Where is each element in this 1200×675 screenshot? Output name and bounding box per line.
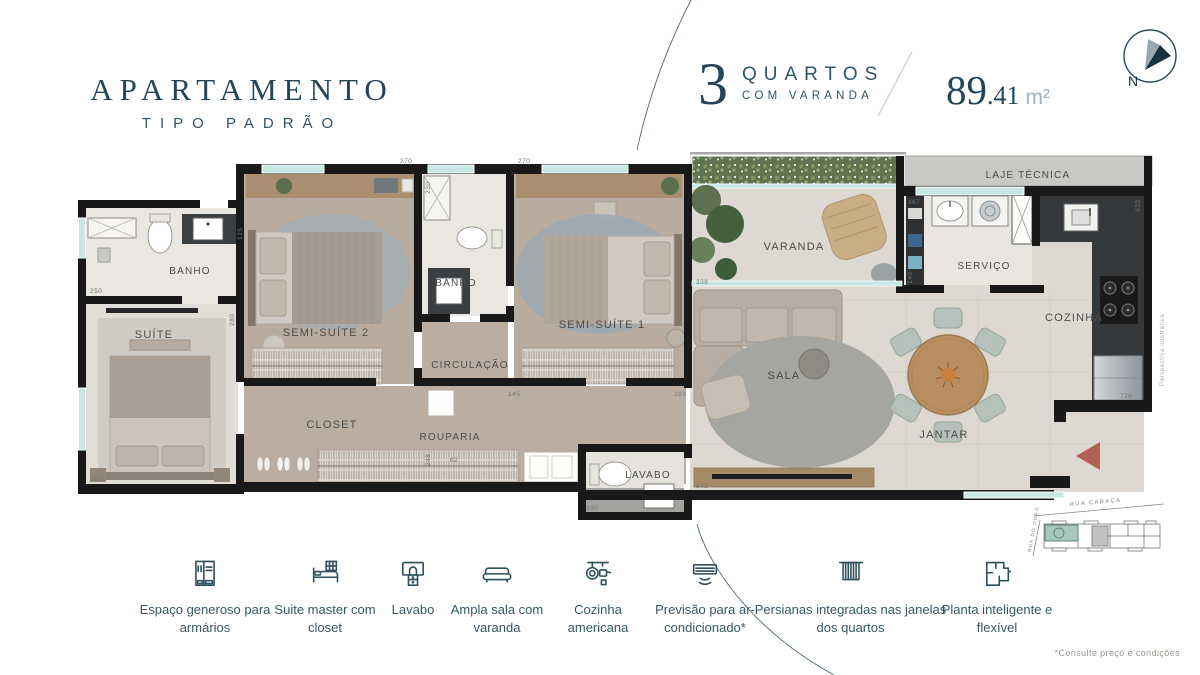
- svg-text:283: 283: [674, 391, 686, 398]
- bed-closet-icon: [308, 558, 342, 592]
- room-label-varanda: VARANDA: [764, 241, 825, 253]
- room-label-lavabo: LAVABO: [625, 470, 671, 481]
- feature-caption: Espaço generoso para armários: [130, 601, 280, 636]
- kitchen-icon: [581, 558, 615, 592]
- wardrobe-icon: [188, 558, 222, 592]
- svg-text:150: 150: [586, 505, 598, 512]
- feature-caption: Lavabo: [373, 601, 453, 619]
- svg-text:563: 563: [90, 476, 102, 483]
- room-label-rouparia: ROUPARIA: [419, 432, 480, 443]
- feature-ampla-sala: Ampla sala com varanda: [445, 558, 549, 636]
- feature-caption: Ampla sala com varanda: [445, 601, 549, 636]
- room-label-sala: SALA: [768, 370, 801, 382]
- ac-icon: [688, 558, 722, 592]
- compass-north-icon: N: [1120, 22, 1184, 92]
- feature-caption: Suite master com closet: [266, 601, 384, 636]
- room-label-closet: CLOSET: [306, 419, 357, 431]
- bedrooms-number: 3: [698, 56, 728, 113]
- vanity-icon: [396, 558, 430, 592]
- svg-text:367: 367: [908, 199, 920, 206]
- room-label-suite: SUÍTE: [135, 328, 173, 341]
- sofa-icon: [480, 558, 514, 592]
- svg-text:248: 248: [425, 454, 432, 466]
- svg-text:62: 62: [450, 457, 458, 464]
- room-label-laje-tecnica: LAJE TÉCNICA: [986, 168, 1071, 181]
- room-label-servico: SERVIÇO: [957, 261, 1010, 272]
- feature-lavabo: Lavabo: [373, 558, 453, 619]
- floor-plan: BANHO SUÍTE SEMI-SUÍTE 2 BANHO SEMI-SUÍT…: [78, 150, 1158, 526]
- feature-caption: Planta inteligente e flexível: [922, 601, 1072, 636]
- room-label-semi-suite-2: SEMI-SUÍTE 2: [283, 326, 370, 339]
- feature-wardrobe: Espaço generoso para armários: [130, 558, 280, 636]
- svg-text:842: 842: [696, 483, 708, 490]
- svg-text:726: 726: [1120, 393, 1132, 400]
- area-block: 89.41m²: [946, 66, 1050, 114]
- floor-plan-drawing: BANHO SUÍTE SEMI-SUÍTE 2 BANHO SEMI-SUÍT…: [78, 150, 1158, 526]
- keyplan: RUA CARAÇA RUA DO OURO: [1028, 494, 1172, 570]
- svg-text:280: 280: [229, 314, 236, 326]
- room-label-jantar: JANTAR: [919, 429, 968, 441]
- area-unit: m²: [1026, 86, 1051, 109]
- svg-text:140: 140: [907, 272, 914, 284]
- floorplan-icon: [980, 558, 1014, 592]
- svg-text:125: 125: [237, 228, 244, 240]
- svg-text:270: 270: [400, 158, 412, 165]
- watermark-vertical: Perspectiva ilustrativa: [1160, 314, 1166, 386]
- street-label-rua-caraca: RUA CARAÇA: [1070, 498, 1122, 508]
- room-label-semi-suite-1: SEMI-SUÍTE 1: [559, 318, 646, 331]
- area-value: 89: [946, 67, 987, 113]
- feature-suite-master: Suite master com closet: [266, 558, 384, 636]
- svg-text:145: 145: [508, 391, 520, 398]
- units-block: 3 QUARTOS COM VARANDA: [698, 56, 884, 113]
- apartment-floorplan-page: APARTAMENTO TIPO PADRÃO 3 QUARTOS COM VA…: [0, 0, 1200, 675]
- area-value-frac: .41: [987, 81, 1020, 110]
- room-label-banho1: BANHO: [169, 266, 211, 277]
- svg-text:230: 230: [425, 182, 432, 194]
- room-label-cozinha: COZINHA: [1045, 312, 1103, 324]
- room-label-banho2: BANHO: [435, 278, 477, 289]
- page-subtitle: TIPO PADRÃO: [82, 115, 402, 132]
- room-label-circulacao: CIRCULAÇÃO: [431, 358, 509, 371]
- footnote: *Consulte preço e condições: [1018, 648, 1180, 658]
- svg-text:270: 270: [518, 158, 530, 165]
- svg-text:N: N: [1128, 73, 1138, 89]
- svg-text:250: 250: [90, 288, 102, 295]
- svg-text:338: 338: [696, 279, 708, 286]
- bedrooms-label: QUARTOS: [742, 64, 884, 86]
- page-title: APARTAMENTO: [82, 72, 402, 108]
- svg-text:333: 333: [1135, 200, 1142, 212]
- blinds-icon: [834, 558, 868, 592]
- title-block: APARTAMENTO TIPO PADRÃO: [82, 72, 402, 132]
- bedrooms-sublabel: COM VARANDA: [742, 90, 884, 102]
- keyplan-highlight-unit: [1045, 525, 1078, 541]
